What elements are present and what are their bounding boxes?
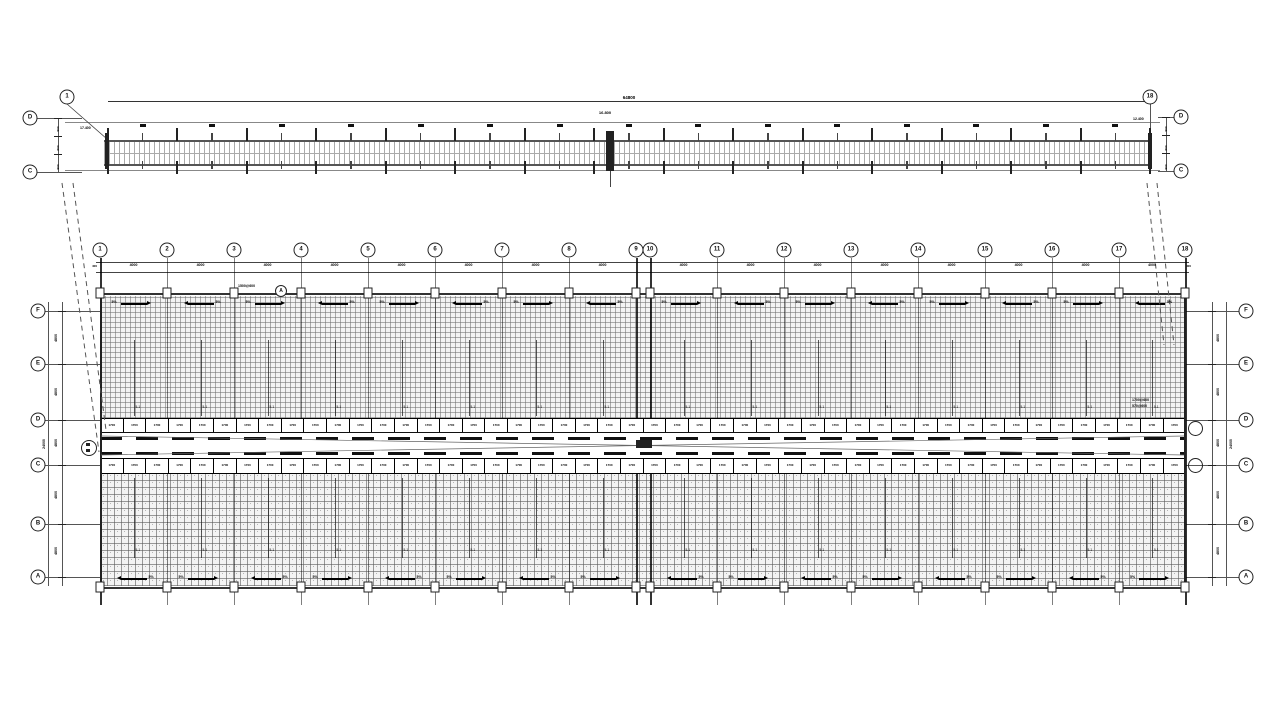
purlin-tag-upper: 5-1 (686, 405, 691, 409)
strip-column-tick-top (732, 128, 734, 141)
slope-arrow-head (1099, 301, 1103, 305)
strip-column-tick-bottom (454, 161, 456, 174)
strip-label-blob (973, 124, 979, 127)
purlin-tag-lower: 5-1 (471, 548, 476, 552)
strip-mid-tick-bottom (281, 161, 283, 169)
chain-dim-value: 1700 (123, 419, 146, 433)
purlin-leader-lower (1152, 478, 1153, 558)
purlin-tag-lower: 5-1 (270, 548, 275, 552)
chain-dim-value: 1700 (665, 459, 688, 473)
strip-column-tick-bottom (593, 161, 595, 174)
strip-mid-tick-top (628, 133, 630, 141)
chain-dim-value: 1700 (937, 459, 960, 473)
purlin-tag-lower: 5-1 (887, 548, 892, 552)
purlin-leader-lower (885, 478, 886, 558)
grid-bubble-col-10: 10 (643, 243, 658, 258)
right-dimline-inner (1212, 302, 1213, 586)
chain-dim-value: 1700 (417, 459, 440, 473)
column-cap-top-6 (431, 288, 440, 299)
strip-column-tick-top (315, 128, 317, 141)
bay-dim-label: 4000 (197, 263, 205, 267)
slope-arrow-head (831, 301, 835, 305)
slope-label: 5% (380, 300, 385, 304)
slope-arrow (738, 303, 764, 305)
column-cap-bottom-8 (565, 582, 574, 593)
slope-label: 5% (1130, 575, 1135, 579)
purlin-leader-lower (684, 478, 685, 558)
purlin-tag-lower: 5-1 (1154, 548, 1159, 552)
purlin-tag-lower: 5-1 (136, 548, 141, 552)
slope-label: 5% (796, 300, 801, 304)
bay-dim-label: 4000 (747, 263, 755, 267)
strip-mid-tick-bottom (976, 161, 978, 169)
slope-arrow-head (385, 576, 389, 580)
strip-column-tick-bottom (941, 161, 943, 174)
row-tick-left-A (58, 577, 66, 578)
plan-dim-line-lower (96, 272, 1189, 273)
row-line-left-B (45, 524, 100, 525)
chain-dim-value: 1700 (1117, 459, 1140, 473)
strip-mid-tick-bottom (837, 161, 839, 169)
strip-side-tick-right (1162, 117, 1170, 118)
slope-arrow (805, 303, 831, 305)
strip-column-tick-top (1080, 128, 1082, 141)
chain-dim-value: 1700 (326, 459, 349, 473)
roof-hatch-lower (100, 472, 1185, 586)
chain-dim-value: 1700 (394, 419, 417, 433)
slope-arrow-head (1165, 576, 1169, 580)
chain-dim-value: 1700 (1072, 419, 1095, 433)
strip-column-tick-bottom (871, 161, 873, 174)
strip-column-tick-bottom (1080, 161, 1082, 174)
column-cap-top-5 (364, 288, 373, 299)
chain-dim-value: 1700 (213, 419, 236, 433)
strip-side-dim-left: 900 (56, 126, 60, 131)
slope-arrow (805, 578, 831, 580)
slope-label: 5% (997, 575, 1002, 579)
strip-mid-tick-top (142, 133, 144, 141)
strip-column-tick-top (941, 128, 943, 141)
row-bubble-strip-C-right: C (1174, 164, 1189, 179)
grid-bubble-col-13: 13 (844, 243, 859, 258)
strip-mid-tick-top (489, 133, 491, 141)
chain-dim-value: 1700 (552, 419, 575, 433)
row-gap-dim-left: 4800 (54, 439, 58, 447)
plan-border-left (100, 293, 102, 589)
slope-label: 5% (1167, 300, 1172, 304)
purlin-tag-lower: 5-1 (1088, 548, 1093, 552)
slope-label: 5% (930, 300, 935, 304)
purlin-tag-lower: 5-1 (605, 548, 610, 552)
chain-dim-value: 1700 (1004, 459, 1027, 473)
chain-dim-value: 1700 (281, 459, 304, 473)
row-bubble-right-D: D (1239, 413, 1254, 428)
chain-dim-value: 1700 (575, 459, 598, 473)
chain-dim-value: 1700 (891, 419, 914, 433)
chain-dim-value: 1700 (258, 419, 281, 433)
purlin-tag-upper: 5-1 (337, 405, 342, 409)
chain-dim-value: 1700 (710, 419, 733, 433)
strip-label-blob (279, 124, 285, 127)
column-cap-top-17 (1115, 288, 1124, 299)
chain-dim-value: 1700 (462, 419, 485, 433)
slope-label: 5% (551, 575, 556, 579)
purlin-leader-lower (134, 478, 135, 558)
purlin-leader-upper (469, 340, 470, 416)
row-gap-dim-right: 4800 (1216, 491, 1220, 499)
left-dimline-inner (62, 302, 63, 586)
left-dimline-outer (48, 302, 49, 586)
purlin-leader-upper (1152, 340, 1153, 416)
slope-arrow-head (1032, 576, 1036, 580)
slope-label: 5% (1034, 300, 1039, 304)
slope-arrow (322, 303, 348, 305)
strip-mid-tick-top (906, 133, 908, 141)
row-gap-dim-left: 4800 (54, 388, 58, 396)
slope-label: 5% (967, 575, 972, 579)
row-gap-dim-left: 4800 (54, 491, 58, 499)
plan-border-right (1184, 293, 1186, 589)
slope-arrow (523, 303, 549, 305)
row-tick-right-C (1208, 465, 1216, 466)
strip-mid-tick-top (420, 133, 422, 141)
slope-arrow-head (1002, 301, 1006, 305)
purlin-tag-upper: 5-1 (954, 405, 959, 409)
purlin-leader-lower (335, 478, 336, 558)
chain-dim-value: 1700 (303, 459, 326, 473)
chain-dim-value: 1700 (710, 459, 733, 473)
column-cap-top-1 (96, 288, 105, 299)
chain-dim-value: 1700 (439, 419, 462, 433)
strip-side-dim-right: 900 (1164, 126, 1168, 131)
strip-end-plate-right (1148, 133, 1152, 169)
strip-side-tick-right (1162, 135, 1170, 136)
row-bubble-right-B: B (1239, 517, 1254, 532)
purlin-leader-upper (751, 340, 752, 416)
strip-side-dim-right: 600 (1164, 145, 1168, 150)
slope-label: 5% (766, 300, 771, 304)
strip-column-tick-top (1010, 128, 1012, 141)
chain-dim-value: 1700 (417, 419, 440, 433)
projection-line-left-1 (62, 183, 99, 452)
slope-arrow-head (519, 576, 523, 580)
strip-mid-tick-top (559, 133, 561, 141)
callout-right-line1: 1700@600 (1132, 398, 1149, 402)
strip-label-blob (487, 124, 493, 127)
chain-dim-value: 1700 (959, 419, 982, 433)
slope-arrow (872, 303, 898, 305)
plan-edge-dim-right: 400 (1186, 264, 1191, 268)
slope-arrow (322, 578, 348, 580)
purlin-leader-upper (536, 340, 537, 416)
chain-dim-value: 1700 (1140, 419, 1163, 433)
strip-label-blob (834, 124, 840, 127)
slope-arrow-head (348, 576, 352, 580)
row-line-left-E (45, 364, 100, 365)
chain-dim-value: 1700 (824, 419, 847, 433)
column-cap-bottom-5 (364, 582, 373, 593)
chain-dim-value: 1700 (349, 459, 372, 473)
slope-arrow (389, 303, 415, 305)
bay-dim-label: 4000 (948, 263, 956, 267)
strip-label-blob (626, 124, 632, 127)
slope-arrow (121, 303, 147, 305)
row-bubble-right-C: C (1239, 458, 1254, 473)
strip-column-tick-top (176, 128, 178, 141)
strip-column-tick-bottom (315, 161, 317, 174)
slope-label: 5% (149, 575, 154, 579)
slope-label: 5% (246, 300, 251, 304)
chain-dim-value: 1700 (778, 459, 801, 473)
purlin-leader-lower (1086, 478, 1087, 558)
column-cap-top-15 (981, 288, 990, 299)
strip-column-tick-top (871, 128, 873, 141)
bay-dim-label: 4000 (680, 263, 688, 267)
slope-arrow-head (214, 576, 218, 580)
slope-label: 5% (662, 300, 667, 304)
purlin-tag-lower: 5-1 (820, 548, 825, 552)
chain-dim-value: 1700 (1004, 419, 1027, 433)
column-cap-bottom-6 (431, 582, 440, 593)
strip-mid-tick-bottom (767, 161, 769, 169)
chain-dim-value: 1700 (213, 459, 236, 473)
strip-label-blob (1043, 124, 1049, 127)
column-cap-top-2 (163, 288, 172, 299)
slope-arrow (255, 303, 281, 305)
grid-bubble-col-17: 17 (1112, 243, 1127, 258)
slope-arrow (939, 303, 965, 305)
row-bubble-right-A: A (1239, 570, 1254, 585)
column-cap-bottom-13 (847, 582, 856, 593)
row-bubble-strip-D-left: D (23, 111, 38, 126)
slope-label: 5% (179, 575, 184, 579)
slope-label: 5% (112, 300, 117, 304)
purlin-tag-lower: 5-1 (753, 548, 758, 552)
slope-arrow (389, 578, 415, 580)
bay-dim-label: 4000 (881, 263, 889, 267)
slope-arrow (188, 578, 214, 580)
chain-dim-value: 1700 (145, 419, 168, 433)
purlin-leader-lower (1019, 478, 1020, 558)
strip-joint-plate (606, 131, 614, 171)
strip-label-blob (348, 124, 354, 127)
strip-label-blob (557, 124, 563, 127)
grid-bubble-col-12: 12 (777, 243, 792, 258)
strip-dim-line (108, 101, 1150, 102)
strip-mid-tick-bottom (906, 161, 908, 169)
purlin-tag-upper: 5-1 (203, 405, 208, 409)
strip-column-tick-bottom (246, 161, 248, 174)
right-overall-dim: 24000 (1229, 439, 1233, 449)
strip-column-tick-top (246, 128, 248, 141)
chain-dim-value: 1700 (801, 419, 824, 433)
bay-dim-label: 4000 (1148, 263, 1156, 267)
slope-arrow (523, 578, 549, 580)
column-cap-top-7 (498, 288, 507, 299)
purlin-leader-upper (684, 340, 685, 416)
purlin-tag-lower: 5-1 (337, 548, 342, 552)
column-cap-top-10 (646, 288, 655, 299)
slope-arrow-head (667, 576, 671, 580)
column-cap-bottom-10 (646, 582, 655, 593)
purlin-leader-upper (201, 340, 202, 416)
slope-arrow (1006, 578, 1032, 580)
strip-mid-tick-bottom (211, 161, 213, 169)
slope-label: 5% (350, 300, 355, 304)
purlin-tag-upper: 5-1 (270, 405, 275, 409)
strip-mid-tick-bottom (559, 161, 561, 169)
row-tick-left-D (58, 420, 66, 421)
column-cap-top-8 (565, 288, 574, 299)
row-bubble-left-A: A (31, 570, 46, 585)
slope-label: 5% (216, 300, 221, 304)
chain-dim-value: 1700 (168, 419, 191, 433)
strip-column-tick-bottom (663, 161, 665, 174)
purlin-tag-upper: 5-1 (887, 405, 892, 409)
strip-level-right: 12.400 (1133, 117, 1144, 121)
strip-column-tick-bottom (802, 161, 804, 174)
column-cap-top-3 (230, 288, 239, 299)
chain-dim-value: 1700 (1095, 459, 1118, 473)
strip-side-tick-left (54, 118, 62, 119)
purlin-leader-upper (402, 340, 403, 416)
purlin-leader-lower (952, 478, 953, 558)
strip-label-blob (140, 124, 146, 127)
plan-edge-dim-left: 400 (92, 264, 97, 268)
strip-mid-tick-bottom (698, 161, 700, 169)
row-bubble-strip-C-left: C (23, 165, 38, 180)
row-bubble-right-E: E (1239, 357, 1254, 372)
slope-arrow (456, 578, 482, 580)
chain-dim-value: 1700 (507, 459, 530, 473)
purlin-leader-lower (201, 478, 202, 558)
slope-arrow (188, 303, 214, 305)
strip-label-blob (418, 124, 424, 127)
slope-arrow (1139, 303, 1165, 305)
grid-bubble-col-2: 2 (160, 243, 175, 258)
row-line-left-A (45, 577, 100, 578)
strip-outer-line-top (65, 122, 1160, 123)
strip-level-left: 17.400 (80, 126, 91, 130)
slope-arrow-head (734, 301, 738, 305)
column-cap-bottom-14 (914, 582, 923, 593)
chain-dim-value: 1700 (326, 419, 349, 433)
purlin-leader-upper (818, 340, 819, 416)
strip-column-tick-top (454, 128, 456, 141)
slope-arrow-head (868, 301, 872, 305)
purlin-leader-lower (603, 478, 604, 558)
row-line-left-C (45, 465, 100, 466)
slope-arrow-head (415, 301, 419, 305)
chain-dim-value: 1700 (394, 459, 417, 473)
column-cap-bottom-3 (230, 582, 239, 593)
slope-arrow-head (117, 576, 121, 580)
column-cap-bottom-9 (632, 582, 641, 593)
eaves-line-bottom (100, 587, 1185, 589)
strip-side-dim-right: 900 (1164, 164, 1168, 169)
chain-dim-value: 1700 (756, 459, 779, 473)
grid-bubble-col-11: 11 (710, 243, 725, 258)
slope-arrow-head (184, 301, 188, 305)
strip-mid-tick-top (837, 133, 839, 141)
strip-side-tick-left (54, 154, 62, 155)
row-bubble-strip-D-right: D (1174, 110, 1189, 125)
chain-dim-value: 1700 (1072, 459, 1095, 473)
column-cap-bottom-12 (780, 582, 789, 593)
chain-dim-value: 1700 (824, 459, 847, 473)
purlin-tag-upper: 5-1 (1088, 405, 1093, 409)
column-cap-top-14 (914, 288, 923, 299)
purlin-tag-upper: 5-1 (1021, 405, 1026, 409)
chain-dim-value: 1700 (643, 419, 666, 433)
slope-arrow-head (801, 576, 805, 580)
chain-dim-value: 1700 (1095, 419, 1118, 433)
purlin-leader-upper (134, 340, 135, 416)
roof-hatch-upper (100, 296, 1185, 418)
strip-column-tick-top (593, 128, 595, 141)
chain-dim-value: 1700 (597, 419, 620, 433)
row-tick-left-B (58, 524, 66, 525)
chain-dim-value: 1700 (281, 419, 304, 433)
slope-arrow (1073, 578, 1099, 580)
strip-column-tick-top (524, 128, 526, 141)
column-cap-top-13 (847, 288, 856, 299)
row-bubble-right-F: F (1239, 304, 1254, 319)
callout-col3-text: 1500@600 (238, 284, 255, 288)
slope-arrow-head (318, 301, 322, 305)
row-line-left-F (45, 311, 100, 312)
chain-dim-value: 1700 (665, 419, 688, 433)
chain-dim-value: 1700 (100, 459, 123, 473)
chain-dim-value: 1700 (349, 419, 372, 433)
chain-dim-value: 1700 (1027, 419, 1050, 433)
strip-mid-tick-bottom (420, 161, 422, 169)
strip-mid-tick-bottom (350, 161, 352, 169)
callout-right-line2: 570@600 (1132, 404, 1147, 408)
chain-dim-value: 1700 (914, 459, 937, 473)
chain-dim-value: 1700 (236, 419, 259, 433)
slope-label: 5% (484, 300, 489, 304)
chain-dim-value: 1700 (620, 419, 643, 433)
strip-mid-tick-bottom (1045, 161, 1047, 169)
bay-dim-label: 4000 (1015, 263, 1023, 267)
chain-dim-value: 1700 (869, 459, 892, 473)
column-cap-bottom-17 (1115, 582, 1124, 593)
strip-row-line-C-right (1158, 171, 1175, 172)
strip-mid-tick-bottom (142, 161, 144, 169)
strip-mid-tick-top (976, 133, 978, 141)
bay-dim-label: 4000 (599, 263, 607, 267)
left-section-marker (81, 440, 97, 456)
chain-dim-value: 1700 (462, 459, 485, 473)
column-cap-bottom-11 (713, 582, 722, 593)
chain-dim-value: 1700 (100, 419, 123, 433)
grid-bubble-col-7: 7 (495, 243, 510, 258)
chain-dim-value: 1700 (1140, 459, 1163, 473)
purlin-tag-lower: 5-1 (954, 548, 959, 552)
chain-dim-value: 1700 (439, 459, 462, 473)
strip-mid-tick-top (350, 133, 352, 141)
purlin-leader-lower (268, 478, 269, 558)
grid-bubble-strip-end: 18 (1143, 90, 1158, 105)
chain-dim-value: 1700 (891, 459, 914, 473)
chain-dim-value: 1700 (846, 419, 869, 433)
strip-label-blob (904, 124, 910, 127)
eaves-line-top (100, 293, 1185, 295)
purlin-leader-upper (268, 340, 269, 416)
callout-col3-bubble: A (275, 285, 287, 297)
purlin-tag-lower: 5-1 (203, 548, 208, 552)
